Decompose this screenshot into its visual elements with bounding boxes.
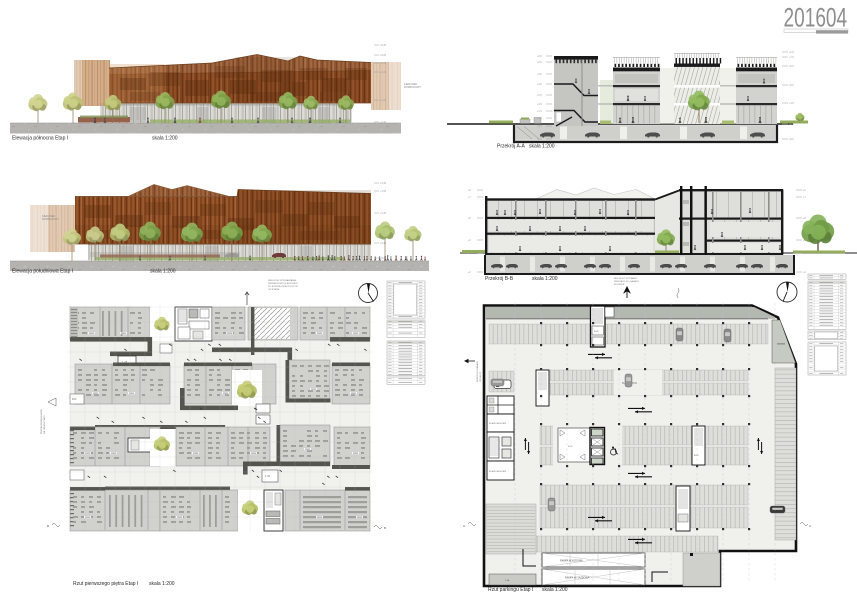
svg-text:RAMPA WYJAZDOWA: RAMPA WYJAZDOWA (565, 577, 590, 580)
svg-text:+9,5: +9,5 (789, 138, 794, 141)
svg-text:+6,5: +6,5 (537, 125, 542, 128)
svg-text:Rzut pierwszego piętra Etap I: Rzut pierwszego piętra Etap I (73, 581, 138, 587)
svg-text:W ETAPIE: W ETAPIE (614, 283, 625, 286)
svg-text:WIELKOSC WYPRAWIANIA: WIELKOSC WYPRAWIANIA (268, 279, 296, 282)
svg-text:+4,5: +4,5 (537, 83, 542, 86)
svg-text:B.02: B.02 (694, 455, 699, 457)
svg-text:+6,5: +6,5 (537, 55, 542, 58)
svg-text:NA TEREN ETAPU: NA TEREN ETAPU (43, 415, 46, 434)
svg-text:+1,5: +1,5 (537, 110, 542, 113)
svg-text:+5,5: +5,5 (537, 94, 542, 97)
svg-text:+2,5: +2,5 (537, 61, 542, 64)
svg-text:+3,30: +3,30 (380, 182, 387, 185)
svg-text:+7,5: +7,5 (789, 56, 794, 59)
svg-text:+2,5: +2,5 (789, 51, 794, 54)
svg-text:+1,50: +1,50 (380, 190, 387, 193)
svg-text:OD ULICY: OD ULICY (480, 371, 482, 382)
svg-text:+3,5: +3,5 (789, 102, 794, 105)
svg-text:+5,30: +5,30 (380, 44, 387, 47)
svg-text:B4C: B4C (72, 398, 77, 401)
svg-text:PRZEJAZD DO GARAZU: PRZEJAZD DO GARAZU (614, 280, 639, 283)
svg-text:+6,5: +6,5 (789, 65, 794, 68)
svg-text:+3,00: +3,00 (380, 62, 387, 65)
svg-text:+3,30: +3,30 (380, 242, 387, 245)
svg-text:B: B (47, 524, 49, 528)
svg-text:skala 1:200: skala 1:200 (152, 136, 178, 142)
svg-text:skala 1:200: skala 1:200 (532, 276, 558, 282)
svg-text:+2,30: +2,30 (380, 121, 387, 124)
svg-text:+3,30: +3,30 (380, 212, 387, 215)
svg-text:+9,5: +9,5 (537, 138, 542, 141)
svg-text:WJAZD DO GARAZU: WJAZD DO GARAZU (476, 360, 479, 382)
svg-text:Przekrój A-A: Przekrój A-A (497, 144, 525, 150)
svg-text:BUS ROUT WYPRAWY: BUS ROUT WYPRAWY (614, 277, 638, 280)
svg-text:A: A (809, 524, 811, 528)
svg-text:BILANS NA DETARI: BILANS NA DETARI (489, 470, 507, 473)
svg-text:RAMPA WJAZDOWA: RAMPA WJAZDOWA (560, 560, 583, 563)
svg-text:skala 1:200: skala 1:200 (542, 587, 568, 593)
svg-text:+4,5: +4,5 (537, 73, 542, 76)
svg-text:ROZBUDOWY: ROZBUDOWY (404, 85, 421, 89)
svg-text:+5,60: +5,60 (380, 54, 387, 57)
svg-text:Elewacja północna Etap I: Elewacja północna Etap I (12, 136, 68, 142)
svg-text:1.30: 1.30 (265, 474, 271, 478)
svg-text:B.05: B.05 (568, 446, 573, 448)
svg-text:+0,20: +0,20 (380, 99, 387, 102)
svg-text:+8,5: +8,5 (537, 117, 542, 120)
svg-text:A: A (463, 524, 465, 528)
svg-text:+4,5: +4,5 (789, 123, 794, 126)
svg-text:B.05: B.05 (594, 331, 599, 333)
svg-text:Przekrój B-B: Przekrój B-B (485, 276, 514, 282)
svg-text:Rzut parkingu Etap I: Rzut parkingu Etap I (488, 587, 533, 593)
svg-text:+2,20: +2,20 (380, 71, 387, 74)
svg-text:+4,5: +4,5 (537, 103, 542, 106)
svg-text:skala 1:200: skala 1:200 (149, 581, 175, 587)
svg-text:skala 1:200: skala 1:200 (150, 269, 176, 275)
svg-text:201604: 201604 (784, 2, 848, 32)
svg-text:Elewacja południowa Etap I: Elewacja południowa Etap I (12, 269, 73, 275)
svg-text:+5,5: +5,5 (789, 84, 794, 87)
svg-text:PRZEBUDOWA WJAZDU: PRZEBUDOWA WJAZDU (40, 408, 43, 434)
svg-text:PO ROZBUDOWIE W LUTYM: PO ROZBUDOWIE W LUTYM (268, 286, 298, 288)
svg-text:PRZEBUDOWY W BUDYNKU: PRZEBUDOWY W BUDYNKU (268, 283, 298, 285)
svg-text:skala 1:200: skala 1:200 (529, 144, 555, 150)
svg-text:ROZBUDOWY: ROZBUDOWY (42, 217, 59, 221)
svg-text:B: B (384, 526, 386, 530)
svg-text:I W ETAPIE: I W ETAPIE (268, 288, 280, 291)
svg-text:BILANS NA DETARI: BILANS NA DETARI (489, 422, 507, 425)
